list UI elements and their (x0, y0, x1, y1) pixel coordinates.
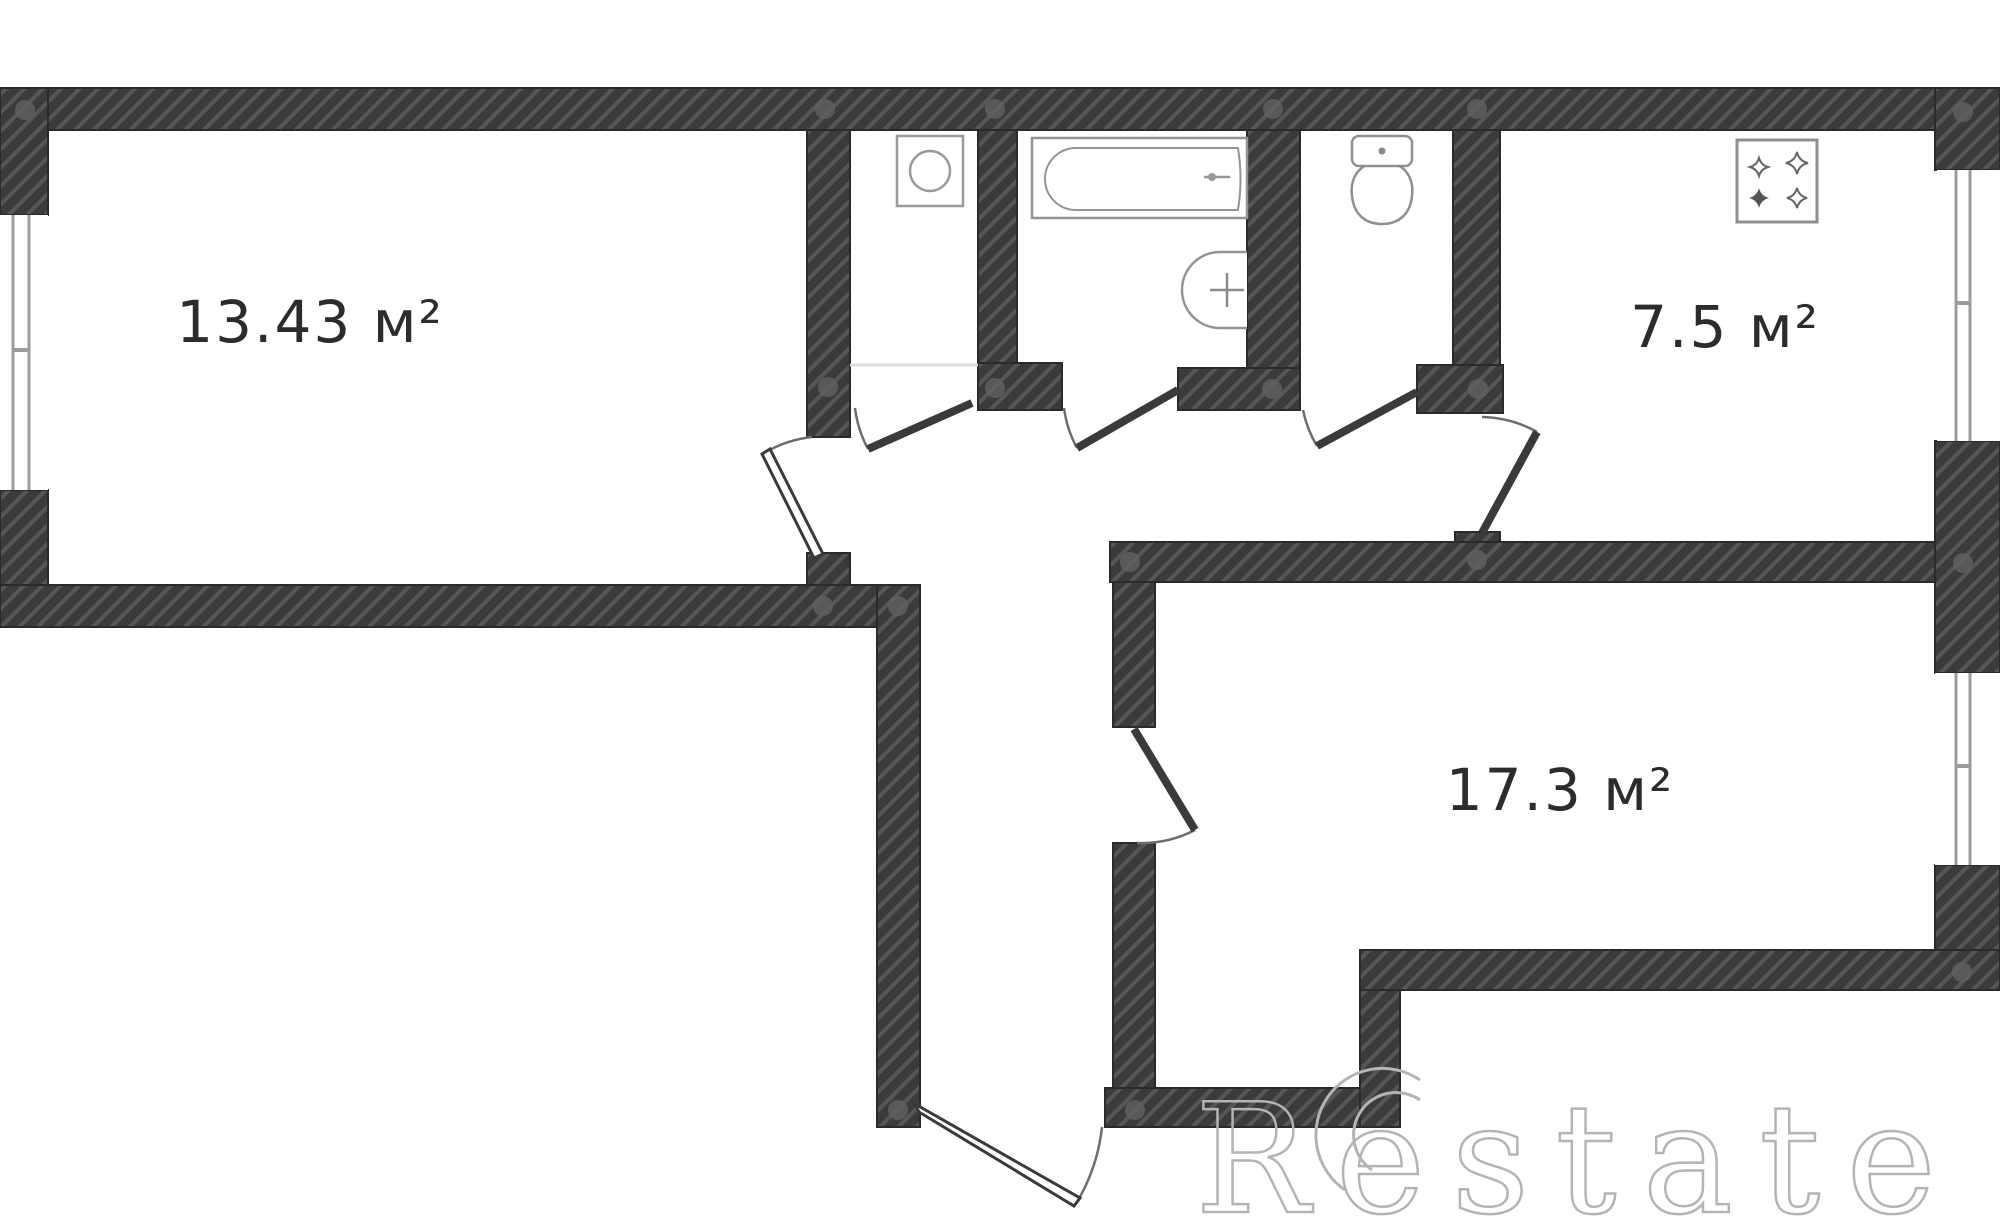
door-room2 (1134, 729, 1195, 843)
watermark: Restate (1195, 1068, 1962, 1223)
wall-bath-wc-divider (1247, 130, 1300, 368)
door-room1 (762, 437, 823, 558)
wall-right-upper (1935, 88, 2000, 170)
door-entrance (915, 1104, 1102, 1206)
kitchen-area-label: 7.5 м² (1630, 293, 1820, 361)
door-kitchen (1482, 417, 1537, 533)
stove-icon (1737, 140, 1817, 222)
door-wc (1303, 392, 1417, 446)
window-room2 (1935, 673, 2000, 865)
toilet-icon (1352, 136, 1413, 224)
window-kitchen (1937, 170, 2000, 441)
floor-plan: 13.43 м² 7.5 м² 17.3 м² Restate (0, 0, 2000, 1223)
washing-machine-icon (897, 136, 963, 206)
watermark-text: Restate (1195, 1071, 1962, 1223)
floor-plan-drawing: 13.43 м² 7.5 м² 17.3 м² Restate (0, 0, 2000, 1223)
wall-wc-right-stub (1417, 365, 1503, 413)
room2-area-label: 17.3 м² (1446, 756, 1675, 824)
bathtub-icon (1032, 138, 1247, 218)
window-room1 (0, 215, 48, 490)
door-closet (855, 403, 972, 449)
wall-room2-top (1110, 542, 1935, 582)
wall-room2-bottom (1360, 950, 2000, 990)
wall-room2-left-upper (1113, 582, 1155, 727)
wall-closet-right (978, 130, 1017, 363)
walls (0, 88, 2000, 1127)
wall-room1-bottom (0, 585, 877, 627)
door-bathroom (1064, 390, 1178, 448)
wall-hall-left (877, 585, 920, 1127)
room1-area-label: 13.43 м² (176, 288, 443, 356)
sink-icon (1182, 252, 1247, 328)
wall-room2-left-lower (1113, 843, 1155, 1088)
